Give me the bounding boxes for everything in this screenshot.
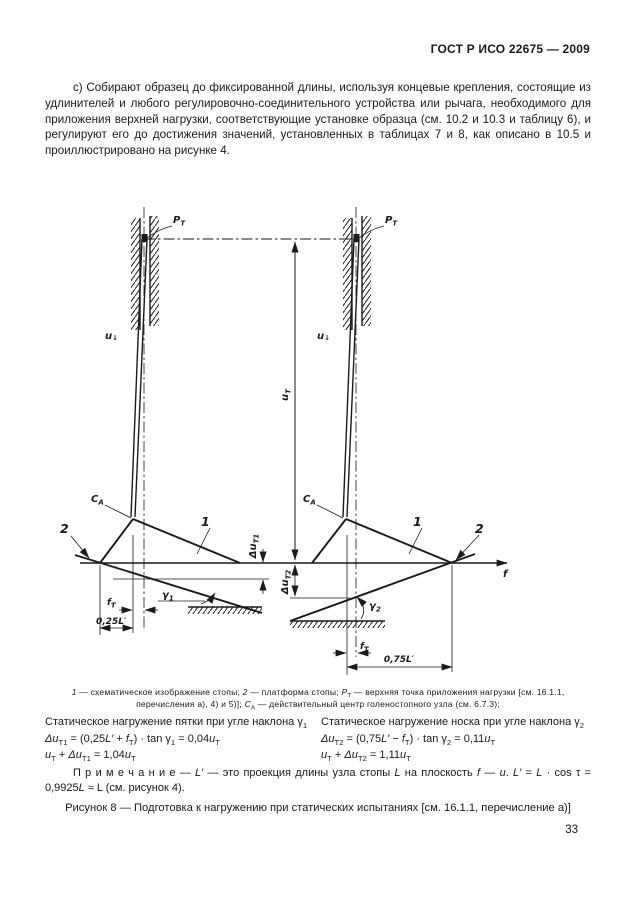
heel-loading-formula-2: uТ + ΔuТ1 = 1,04uТ [45,747,315,764]
ca-label: CА [303,494,316,507]
document-header: ГОСТ Р ИСО 22675 — 2009 [431,42,590,56]
toe-loading-column: Статическое нагружение носка при угле на… [321,714,591,764]
ca-label: CА [91,494,104,507]
heel-loading-column: Статическое нагружение пятки при угле на… [45,714,315,764]
toe-loading-formula-2: uТ + ΔuТ2 = 1,11uТ [321,747,591,764]
ca-leader [105,505,131,518]
foot-number-label: 1 [413,514,422,529]
platform-number-label: 2 [60,521,69,536]
heel-loading-title: Статическое нагружение пятки при угле на… [45,714,315,731]
loading-schematic-svg: uТ f PТ u↓ CА [55,205,520,685]
gamma2-arc [357,597,364,619]
left-diagram-heel-loading: PТ u↓ CА 1 2 ΔuТ1 γ1 [60,207,269,635]
dut2-label: ΔuТ2 [280,570,293,596]
platform-arrow [71,536,89,558]
toe-loading-title: Статическое нагружение носка при угле на… [321,714,591,731]
schematic-foot [312,519,452,563]
pt-label: PТ [173,215,186,228]
foot-platform [290,554,475,621]
dim025-label: 0,25L′ [96,617,127,627]
document-page: ГОСТ Р ИСО 22675 — 2009 с) Собирают обра… [0,0,630,913]
gamma1-label: γ1 [162,590,174,603]
u-displacement-label: u↓ [105,331,118,342]
ground-left [188,607,262,614]
ft-label: fТ [107,598,117,610]
ft-label: fТ [360,642,370,654]
figure-legend: 1 — схематическое изображение стопы; 2 —… [45,686,591,710]
heel-loading-formula-1: ΔuТ1 = (0,25L′ + fТ) · tan γ1 = 0,04uТ [45,731,315,748]
intro-paragraph: с) Собирают образец до фиксированной дли… [45,80,591,159]
note-paragraph: П р и м е ч а н и е — L′ — это проекция … [45,766,591,795]
ut-dimension-label: uТ [280,388,293,401]
ca-leader [317,505,343,518]
f-axis-label: f [503,569,509,580]
dim075-label: 0,75L′ [384,655,415,665]
dut1-label: ΔuТ1 [248,534,261,560]
toe-loading-formula-1: ΔuТ2 = (0,75L′ − fТ) · tan γ2 = 0,11uТ [321,731,591,748]
figure-caption: Рисунок 8 — Подготовка к нагружению при … [45,802,591,814]
pt-label: PТ [385,215,398,228]
platform-number-label: 2 [475,521,484,536]
foot-number-label: 1 [201,514,210,529]
page-number: 33 [565,824,578,836]
right-rail-hatch [150,216,159,326]
u-displacement-label: u↓ [317,331,330,342]
figure-8-diagram: uТ f PТ u↓ CА [55,205,520,685]
gamma2-label: γ2 [369,601,381,614]
right-rail-hatch [362,216,371,326]
schematic-foot [100,519,240,563]
ground-right [290,621,385,628]
right-diagram-toe-loading: PТ u↓ CА 1 2 ΔuТ2 γ2 [280,207,484,675]
